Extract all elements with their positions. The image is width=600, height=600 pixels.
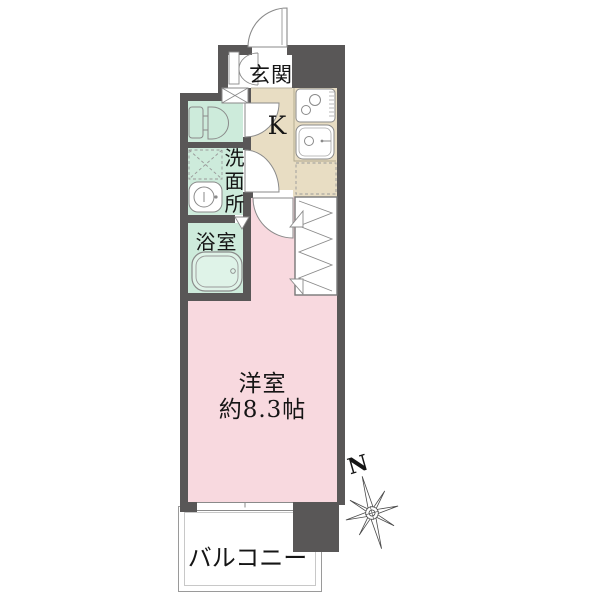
western-room-label: 洋室 約8.3帖 — [188, 371, 337, 423]
wall — [180, 502, 197, 512]
wall — [337, 45, 345, 505]
wall — [180, 101, 188, 511]
wall — [180, 93, 251, 101]
western-room-size: 約8.3帖 — [188, 397, 337, 423]
western-room-name: 洋室 — [188, 371, 337, 397]
genkan-label: 玄関 — [248, 59, 294, 89]
compass-rose-icon — [336, 469, 408, 555]
floor-plan: 玄関 K 洗面所 浴室 洋室 約8.3帖 バルコニー N — [0, 0, 600, 600]
compass-north-label: N — [342, 449, 374, 481]
entrance-door-icon — [248, 8, 287, 47]
kitchen-floor — [251, 88, 337, 197]
washroom-label: 洗面所 — [223, 147, 246, 216]
bathroom-label: 浴室 — [190, 226, 243, 255]
wall — [180, 293, 251, 301]
balcony-label: バルコニー — [185, 538, 310, 573]
western-room-floor-upper — [251, 197, 337, 301]
wall — [188, 215, 235, 223]
toilet-room-floor — [188, 101, 243, 142]
wall — [218, 45, 228, 93]
kitchen-label: K — [262, 111, 292, 140]
wall — [225, 45, 252, 55]
